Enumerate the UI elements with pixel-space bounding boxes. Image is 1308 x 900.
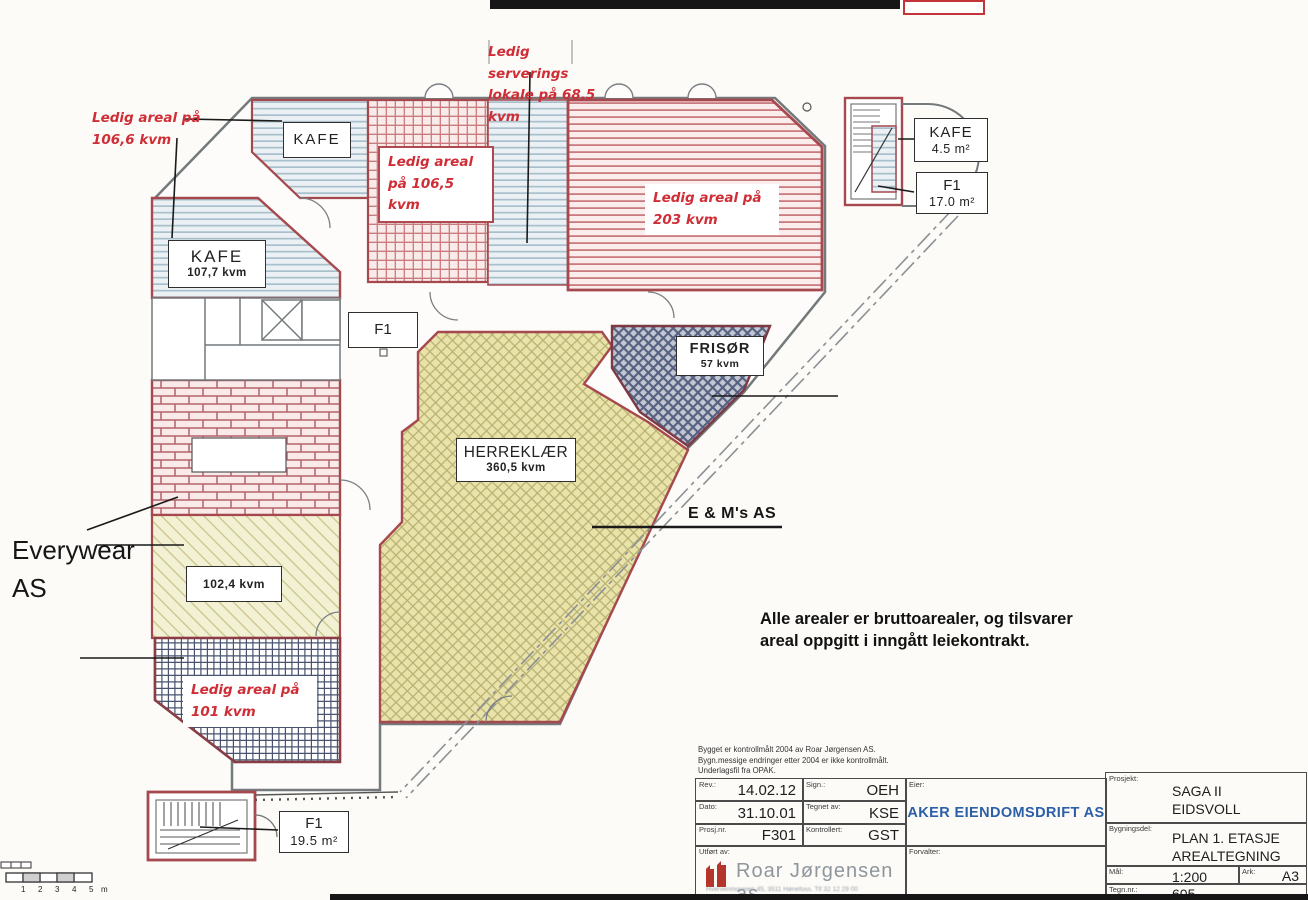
- scale-mark: 3: [55, 885, 59, 894]
- scale-unit: m: [101, 885, 108, 894]
- label-kafe-left: KAFE 107,7 kvm: [168, 240, 266, 288]
- tb-dato-label: Dato:: [699, 802, 717, 811]
- tb-forvalter-cell: Forvalter:: [905, 845, 1107, 897]
- label-102-4: 102,4 kvm: [186, 566, 282, 602]
- note-ledig-106-5: Ledig areal på 106,5 kvm: [378, 146, 494, 223]
- room-name: F1: [374, 321, 392, 339]
- scale-mark: 2: [38, 885, 42, 894]
- tb-dato-cell: Dato: 31.10.01: [695, 800, 804, 825]
- firm-address: Hvervenmoveien 45, 3511 Hønefoss. Tlf 32…: [706, 886, 858, 893]
- room-area: 17.0 m²: [929, 195, 975, 210]
- tb-prosjekt-label: Prosjekt:: [1109, 774, 1138, 783]
- interior-rooms: [152, 298, 340, 380]
- tb-ark-value: A3: [1282, 868, 1299, 884]
- general-note: Alle arealer er bruttoarealer, og tilsva…: [760, 608, 1073, 653]
- tb-ark-cell: Ark: A3: [1238, 865, 1307, 885]
- scan-artifact-top-bar: [490, 0, 900, 9]
- tb-dato-value: 31.10.01: [738, 805, 796, 822]
- label-kafe-small: KAFE 4.5 m²: [914, 118, 988, 162]
- tb-eier-value: AKER EIENDOMSDRIFT AS: [906, 805, 1106, 821]
- tb-kontrollert-cell: Kontrollert: GST: [802, 823, 907, 847]
- room-area: 360,5 kvm: [486, 462, 546, 476]
- tenant-em-as: E & M's AS: [688, 505, 776, 523]
- tb-tegnet-value: KSE: [869, 805, 899, 822]
- firm-logo-icon: [704, 859, 732, 889]
- label-herreklaer: HERREKLÆR 360,5 kvm: [456, 438, 576, 482]
- label-frisor: FRISØR 57 kvm: [676, 336, 764, 376]
- empty-label-box: [192, 438, 286, 472]
- room-name: FRISØR: [690, 341, 751, 358]
- tb-tegnet-cell: Tegnet av: KSE: [802, 800, 907, 825]
- room-name: KAFE: [929, 124, 972, 142]
- scale-mark: 4: [72, 885, 76, 894]
- tb-utfort-label: Utført av:: [699, 847, 730, 856]
- room-name: KAFE: [191, 247, 243, 267]
- tb-prosjekt-value: SAGA II EIDSVOLL: [1172, 782, 1240, 818]
- note-ledig-106-6: Ledig areal på 106,6 kvm: [92, 108, 232, 151]
- room-name: KAFE: [293, 131, 340, 149]
- label-f1-bottom: F1 19.5 m²: [279, 811, 349, 853]
- tb-rev-value: 14.02.12: [738, 782, 796, 799]
- tb-sign-cell: Sign.: OEH: [802, 778, 907, 802]
- note-ledig-101: Ledig areal på 101 kvm: [183, 676, 317, 727]
- tb-kontrollert-value: GST: [868, 827, 899, 844]
- tb-kontrollert-label: Kontrollert:: [806, 825, 842, 834]
- tb-rev-cell: Rev.: 14.02.12: [695, 778, 804, 802]
- tb-prosjnr-cell: Prosj.nr. F301: [695, 823, 804, 847]
- titleblock-disclaimer: Bygget er kontrollmålt 2004 av Roar Jørg…: [698, 745, 998, 777]
- tb-prosjnr-value: F301: [762, 827, 796, 844]
- note-ledig-203: Ledig areal på 203 kvm: [645, 184, 779, 235]
- tb-forvalter-label: Forvalter:: [909, 847, 941, 856]
- tb-prosjekt-cell: Prosjekt: SAGA II EIDSVOLL: [1105, 772, 1307, 824]
- note-ledig-serving: Ledig serverings lokale på 68,5 kvm: [488, 42, 608, 128]
- tb-bygningsdel-value: PLAN 1. ETASJE AREALTEGNING: [1172, 829, 1281, 865]
- tb-ark-label: Ark:: [1242, 867, 1255, 876]
- room-area: 107,7 kvm: [187, 267, 247, 281]
- room-name: F1: [943, 177, 961, 195]
- room-name: HERREKLÆR: [464, 444, 568, 463]
- tb-maal-cell: Mål: 1:200: [1105, 865, 1240, 885]
- label-kafe-top: KAFE: [283, 122, 351, 158]
- tb-eier-label: Eier:: [909, 780, 924, 789]
- scan-artifact-red-box: [903, 0, 985, 15]
- scale-bar: [1, 862, 92, 882]
- tb-tegnnr-label: Tegn.nr.:: [1109, 885, 1138, 894]
- tb-bygningsdel-label: Bygningsdel:: [1109, 824, 1152, 833]
- room-area: 19.5 m²: [290, 833, 338, 849]
- room-name: F1: [305, 815, 323, 833]
- tb-utfort-cell: Utført av: Roar Jørgensen as Hvervenmove…: [695, 845, 907, 897]
- tb-bygningsdel-cell: Bygningsdel: PLAN 1. ETASJE AREALTEGNING: [1105, 822, 1307, 867]
- room-area: 102,4 kvm: [203, 577, 265, 591]
- tb-sign-label: Sign.:: [806, 780, 825, 789]
- floorplan-sheet: Ledig serverings lokale på 68,5 kvm Ledi…: [0, 0, 1308, 900]
- room-area: 57 kvm: [701, 358, 740, 371]
- tb-maal-label: Mål:: [1109, 867, 1123, 876]
- scan-artifact-bottom-bar: [330, 894, 1308, 900]
- tb-sign-value: OEH: [866, 782, 899, 799]
- tb-prosjnr-label: Prosj.nr.: [699, 825, 727, 834]
- scale-mark: 5: [89, 885, 93, 894]
- tb-tegnet-label: Tegnet av:: [806, 802, 841, 811]
- label-f1-mid: F1: [348, 312, 418, 348]
- column-marker: [803, 103, 811, 111]
- stairwell-bottomleft: [148, 792, 398, 860]
- label-f1-small: F1 17.0 m²: [916, 172, 988, 214]
- tenant-everywear: Everywear AS: [12, 532, 135, 607]
- scale-mark: 1: [21, 885, 25, 894]
- tb-eier-cell: Eier: AKER EIENDOMSDRIFT AS: [905, 778, 1107, 847]
- room-area: 4.5 m²: [932, 142, 970, 157]
- tb-rev-label: Rev.:: [699, 780, 716, 789]
